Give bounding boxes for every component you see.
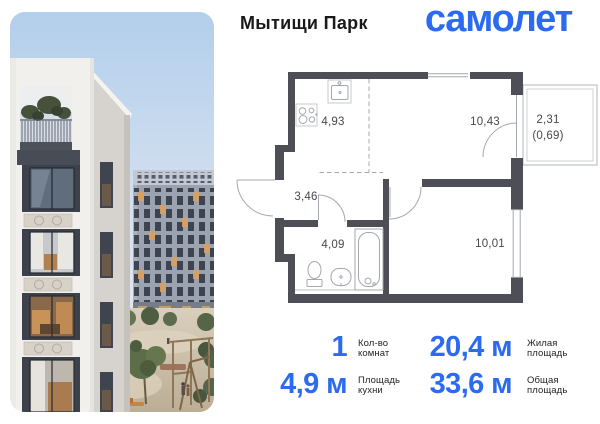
washbasin-icon — [331, 269, 351, 287]
living-area-label-line2: площадь — [527, 349, 567, 359]
living-area-value: 20,4 м — [370, 333, 512, 362]
stove-icon — [296, 104, 317, 126]
hallway-area-label: 3,46 — [294, 191, 317, 203]
facade-windows — [22, 165, 80, 412]
toilet-icon — [307, 262, 322, 287]
balcony-outline — [523, 85, 597, 165]
room-bottom-area-label: 10,01 — [475, 238, 505, 250]
balcony-area-label: 2,31 — [536, 114, 559, 126]
total-area-label: Общая площадь — [527, 376, 567, 395]
bathtub-icon — [355, 229, 383, 290]
walls — [275, 72, 523, 303]
building-photo-render — [10, 12, 214, 412]
room-count-value: 1 — [240, 333, 347, 362]
living-area-label: Жилая площадь — [527, 339, 567, 358]
project-title: Мытищи Парк — [240, 13, 368, 34]
kitchen-area-value: 4,9 м — [240, 370, 347, 399]
sink-icon — [328, 80, 351, 103]
bathroom-area-label: 4,09 — [321, 239, 344, 251]
terrace — [20, 86, 72, 150]
building-photo — [10, 12, 214, 412]
total-area-label-line2: площадь — [527, 386, 567, 396]
balcony-reduced-area-label: (0,69) — [532, 130, 563, 142]
total-area-value: 33,6 м — [370, 370, 512, 399]
foreground-building — [10, 58, 132, 412]
background-building — [133, 170, 214, 322]
floor-plan: 4,93 10,43 2,31 (0,69) 3,46 4,09 10,01 — [230, 60, 600, 320]
kitchen-area-label: 4,93 — [321, 116, 344, 128]
samolet-brand-logo: самолет — [425, 0, 572, 41]
room-top-area-label: 10,43 — [470, 116, 500, 128]
apartment-listing-card: Мытищи Парк самолет — [0, 0, 600, 424]
